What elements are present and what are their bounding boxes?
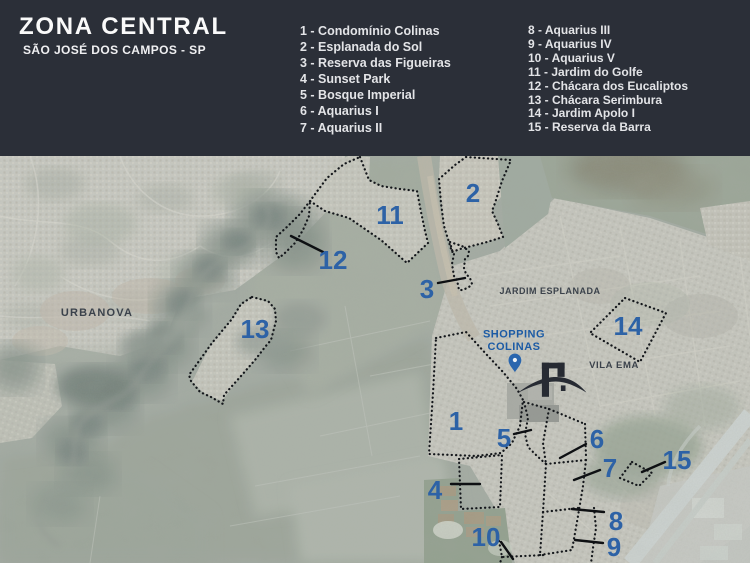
svg-text:4: 4 <box>428 475 443 505</box>
svg-text:SHOPPING: SHOPPING <box>483 329 545 341</box>
svg-text:10: 10 <box>472 522 501 552</box>
svg-text:1: 1 <box>449 406 463 436</box>
svg-text:9: 9 <box>607 532 621 562</box>
svg-text:13: 13 <box>241 314 270 344</box>
svg-text:COLINAS: COLINAS <box>488 341 541 353</box>
svg-text:11: 11 <box>376 200 404 230</box>
svg-text:7: 7 <box>603 453 617 483</box>
svg-text:6: 6 <box>590 424 604 454</box>
svg-text:2: 2 <box>466 178 480 208</box>
svg-text:VILA EMA: VILA EMA <box>589 360 639 371</box>
svg-text:12: 12 <box>319 245 348 275</box>
svg-text:URBANOVA: URBANOVA <box>61 307 133 319</box>
svg-text:5: 5 <box>497 423 511 453</box>
svg-text:14: 14 <box>614 311 643 341</box>
svg-text:3: 3 <box>420 274 434 304</box>
svg-text:15: 15 <box>663 445 692 475</box>
svg-text:JARDIM ESPLANADA: JARDIM ESPLANADA <box>499 286 600 296</box>
